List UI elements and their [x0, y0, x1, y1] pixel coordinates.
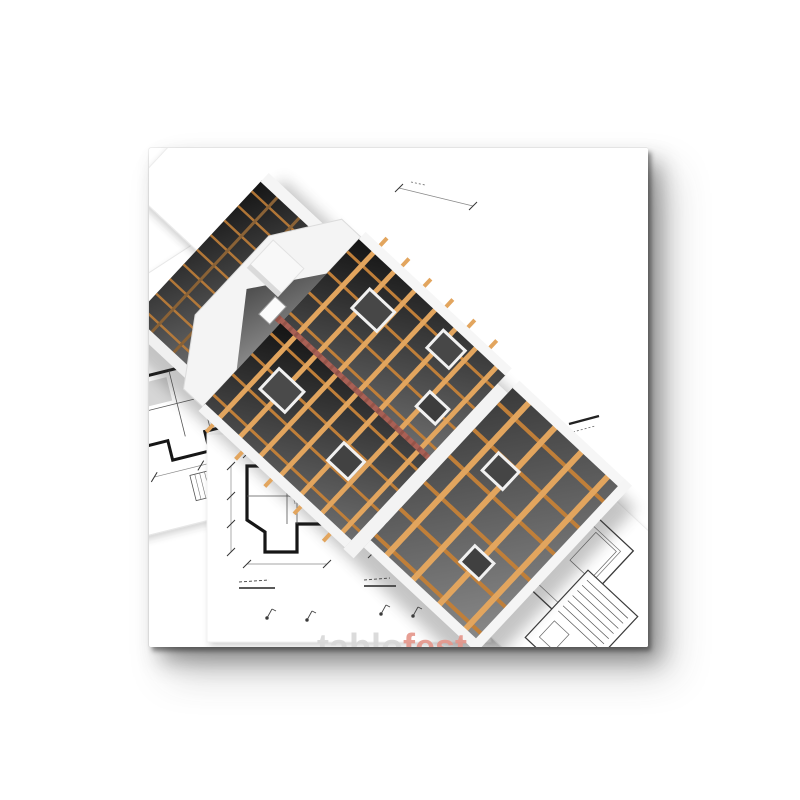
watermark: tablofest — [317, 629, 467, 647]
watermark-text-red: fest — [403, 626, 467, 647]
product-photo-background: tablofest — [0, 0, 800, 800]
canvas-print: tablofest — [149, 148, 648, 647]
artwork-blueprint-house — [149, 148, 648, 647]
watermark-text-gray: tablo — [317, 626, 403, 647]
